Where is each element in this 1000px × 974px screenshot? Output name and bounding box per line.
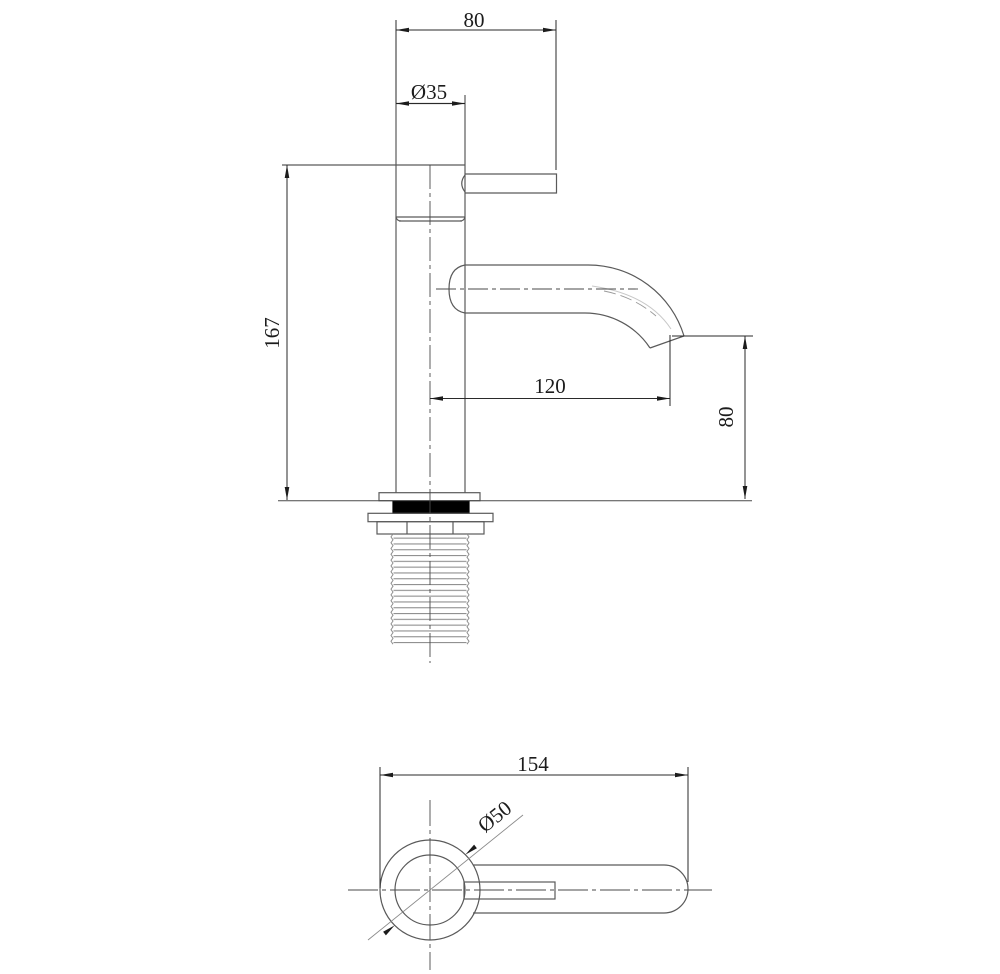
handle-plan-outline (473, 865, 688, 913)
dim-label-dia50: Ø50 (473, 796, 516, 837)
arrow-left (430, 396, 443, 401)
dimension-overall-height: 167 (260, 165, 289, 500)
handle-lever-outline (465, 174, 557, 193)
arrow-down (743, 486, 748, 499)
arrow-left (396, 28, 409, 33)
arrow-right (657, 396, 670, 401)
spout-bend-centerline (604, 291, 656, 316)
handle-shaft-plan (464, 882, 555, 899)
arrow-left (380, 773, 393, 778)
dim-label-80-right: 80 (714, 407, 738, 428)
dim-label-154: 154 (517, 752, 549, 776)
spout (449, 265, 684, 348)
dim-label-80-top: 80 (464, 8, 485, 32)
arrow-left (396, 101, 409, 106)
arrow-up (285, 165, 290, 178)
technical-drawing-page: 80 Ø35 167 120 (0, 0, 1000, 974)
dimension-spout-reach: 120 (430, 335, 670, 406)
arrow-right (675, 773, 688, 778)
arrow-right (543, 28, 556, 33)
arrow-right (452, 101, 465, 106)
thread-right-edge (467, 534, 469, 644)
dimension-spout-height: 80 (672, 336, 753, 499)
handle-lever (462, 174, 557, 193)
spout-outer-edge (465, 265, 684, 348)
rubber-washer (393, 502, 469, 514)
arrow-up (743, 336, 748, 349)
plan-view: 154 Ø50 (348, 752, 712, 970)
dim-label-120: 120 (534, 374, 566, 398)
faucet-technical-drawing: 80 Ø35 167 120 (0, 0, 1000, 974)
front-elevation-view: 80 Ø35 167 120 (260, 8, 753, 663)
hex-nut (377, 522, 484, 534)
spout-inner-edge (465, 313, 650, 348)
faucet-body-outline (282, 95, 465, 493)
arrow-down (285, 487, 290, 500)
dim-label-167: 167 (260, 317, 284, 349)
locknut-flange (368, 513, 493, 521)
base-flange (379, 493, 480, 501)
neck-joint-left-chamfer (396, 217, 401, 221)
thread-left-edge (391, 534, 393, 644)
spout-bend-highlight (592, 286, 671, 329)
neck-joint-right-chamfer (460, 217, 465, 221)
base-assembly (278, 493, 752, 645)
dimension-body-diameter: Ø35 (396, 80, 465, 106)
plan-centerlines (348, 800, 712, 970)
dimension-overall-length: 154 (380, 752, 688, 888)
dim-label-dia35: Ø35 (411, 80, 447, 104)
dimension-base-diameter: Ø50 (368, 796, 523, 940)
